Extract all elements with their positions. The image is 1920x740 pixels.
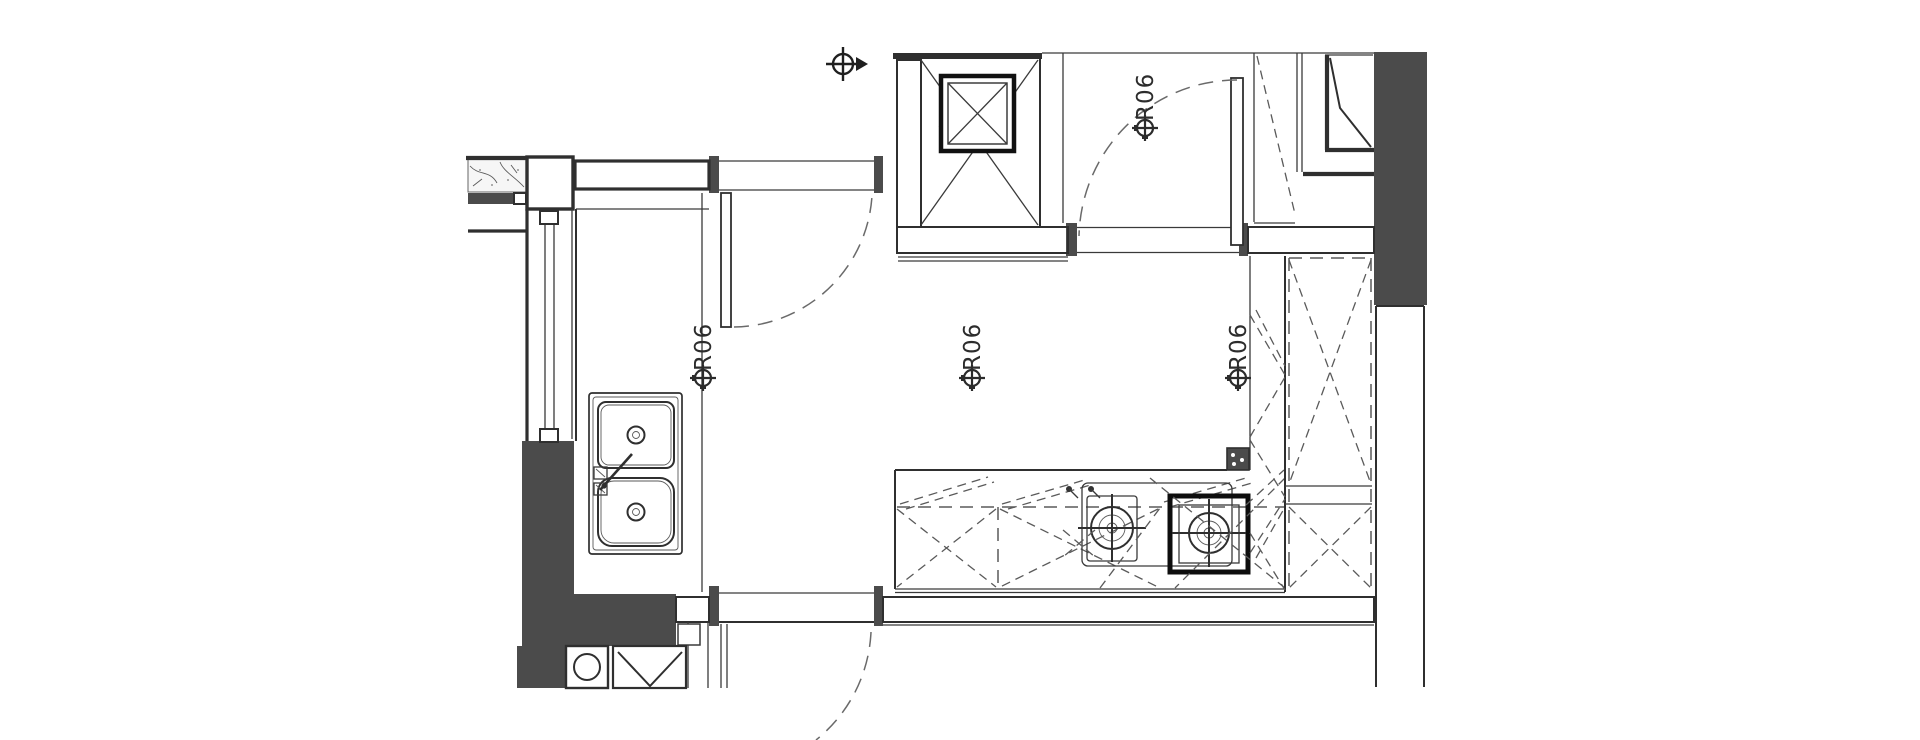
jamb [709,586,719,626]
wall-left-lower [522,441,574,594]
door-swing-arc [734,196,872,327]
room-label: R06 [960,323,986,371]
floor-plan-canvas: R06 R06 R06 R06 [0,0,1920,740]
washing-machine [566,646,608,688]
room-label: R06 [1226,323,1252,371]
wall-hatch-top-right [1248,227,1374,253]
exterior-wall-stone [466,158,528,231]
door-leaf [721,193,731,327]
duct-shaft [893,53,1068,261]
door-top-right [1077,78,1243,253]
door-bottom [678,593,1374,740]
frame-block [678,624,700,645]
gas-hob [1063,470,1284,588]
corner-column [527,157,573,209]
left-window-section [527,209,576,442]
sill-end [514,193,526,204]
tall-cabinet-x [1289,260,1371,588]
fridge-or-door-panel [1325,55,1374,150]
jamb [874,156,883,193]
wall-bottom-leg [517,646,568,688]
wall-hatch-top-left [575,161,709,189]
jamb [874,586,883,626]
cabinet-door-flaps [900,477,1252,509]
room-label: R06 [691,323,717,371]
gas-riser-block [1227,448,1249,470]
wall-right [1374,52,1427,305]
survey-point-arrow-icon [826,47,868,81]
kitchen-sink [589,393,682,554]
door-top-left [719,161,874,327]
sill-bar [468,193,514,204]
wall-hatch-bottom [883,597,1374,622]
wall-hatch-shaft-left [897,60,921,227]
south-counter [895,448,1285,593]
wall-bottom-arm [522,594,676,646]
door-leaf [1231,78,1243,245]
wall-hatch-shaft-bottom [897,227,1068,253]
window-jamb-top [540,211,558,224]
bottom-left-fixtures [566,646,686,688]
door-swing-arc [816,632,871,740]
door-label: R06 [1133,73,1159,121]
wall-hatch-bottom-left [676,597,709,622]
stone-block [468,158,526,192]
dashed-swing-line [1257,56,1295,214]
shaft-v-box [613,646,686,688]
cabinet-open-chevrons [1250,310,1285,590]
floor-plan-page: R06 R06 R06 R06 [0,0,1920,740]
window-jamb-bottom [540,429,558,442]
east-tall-cabinets [1250,256,1372,592]
